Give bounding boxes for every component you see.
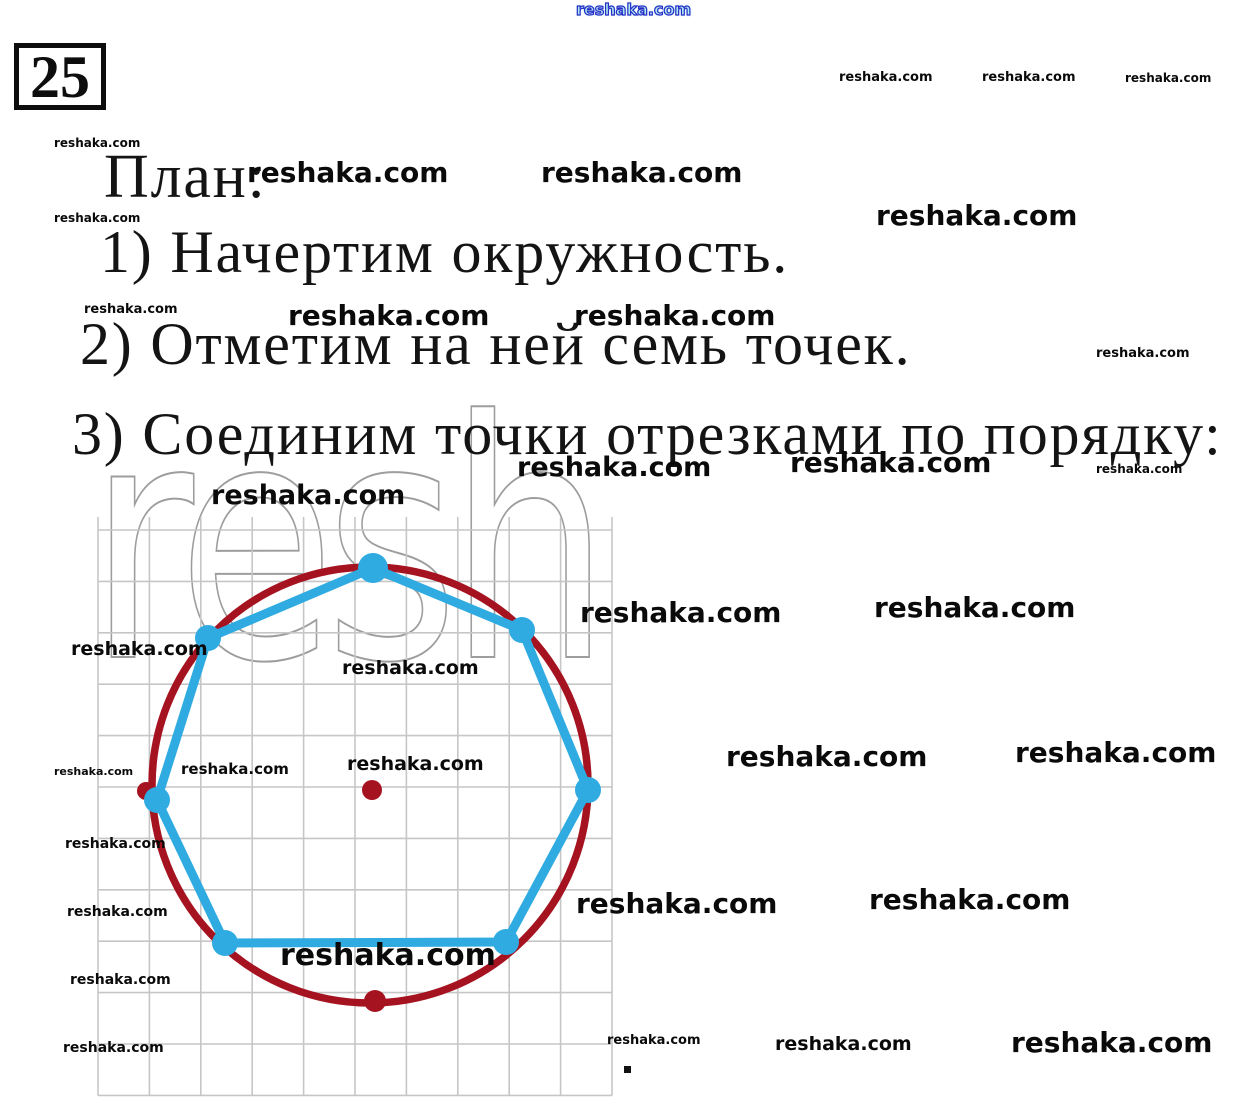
watermark: reshaka.com	[839, 71, 933, 84]
problem-number-badge: 25	[14, 43, 106, 110]
watermark: reshaka.com	[580, 599, 781, 627]
watermark: reshaka.com	[726, 743, 927, 771]
scanned-solution-page: resh 25 План: 1) Начертим окружность. 2)…	[0, 0, 1253, 1113]
watermark: reshaka.com	[1015, 739, 1216, 767]
heptagon-vertex-6	[144, 787, 170, 813]
watermark: reshaka.com	[347, 755, 484, 774]
watermark: reshaka.com	[54, 137, 140, 149]
heptagon-vertex-2	[509, 617, 535, 643]
circle-center-point	[362, 780, 382, 800]
watermark: reshaka.com	[541, 159, 742, 187]
watermark: reshaka.com	[1011, 1029, 1212, 1057]
watermark: reshaka.com	[288, 302, 489, 330]
watermark: reshaka.com	[607, 1034, 701, 1047]
circle-bottom-point	[364, 990, 386, 1012]
watermark: reshaka.com	[869, 886, 1070, 914]
watermark: reshaka.com	[65, 837, 166, 851]
watermark-colored: reshaka.com	[576, 2, 691, 18]
watermark: reshaka.com	[247, 159, 448, 187]
watermark: reshaka.com	[63, 1041, 164, 1055]
watermark: reshaka.com	[67, 905, 168, 919]
watermark: reshaka.com	[517, 454, 711, 481]
watermark: reshaka.com	[1096, 347, 1190, 360]
watermark: reshaka.com	[874, 594, 1075, 622]
plan-title: План:	[104, 146, 267, 208]
watermark: reshaka.com	[576, 890, 777, 918]
watermark: reshaka.com	[574, 302, 775, 330]
watermark: reshaka.com	[342, 659, 479, 678]
watermark: reshaka.com	[982, 71, 1076, 84]
watermark: reshaka.com	[54, 766, 133, 777]
watermark: reshaka.com	[876, 202, 1077, 230]
watermark: reshaka.com	[1096, 463, 1182, 475]
watermark: reshaka.com	[71, 640, 208, 659]
heptagon-vertex-4	[493, 929, 519, 955]
heptagon-vertex-5	[212, 930, 238, 956]
problem-number: 25	[30, 47, 90, 107]
watermark: reshaka.com	[790, 449, 991, 477]
watermark: reshaka.com	[280, 941, 496, 971]
left-point-marker	[137, 782, 155, 800]
watermark: reshaka.com	[1125, 72, 1211, 84]
step-2-text: 2) Отметим на ней семь точек.	[80, 314, 911, 374]
watermark: reshaka.com	[54, 212, 140, 224]
heptagon-vertex-1	[358, 553, 388, 583]
heptagon-vertex-3	[575, 777, 601, 803]
watermark: reshaka.com	[211, 482, 405, 509]
stray-mark-square	[624, 1066, 631, 1073]
grid-lines	[98, 517, 612, 1095]
watermark: reshaka.com	[775, 1035, 912, 1054]
step-1-text: 1) Начертим окружность.	[100, 222, 789, 282]
watermark: reshaka.com	[84, 303, 178, 316]
watermark: reshaka.com	[70, 973, 171, 987]
watermark: reshaka.com	[181, 762, 289, 777]
